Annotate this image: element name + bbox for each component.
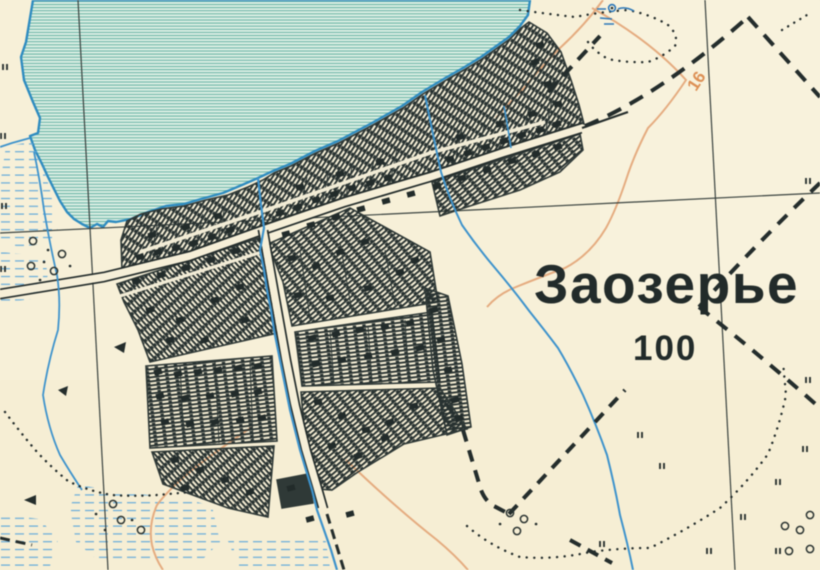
svg-text:100: 100	[633, 329, 697, 368]
svg-text:Заозерье: Заозерье	[534, 253, 799, 315]
